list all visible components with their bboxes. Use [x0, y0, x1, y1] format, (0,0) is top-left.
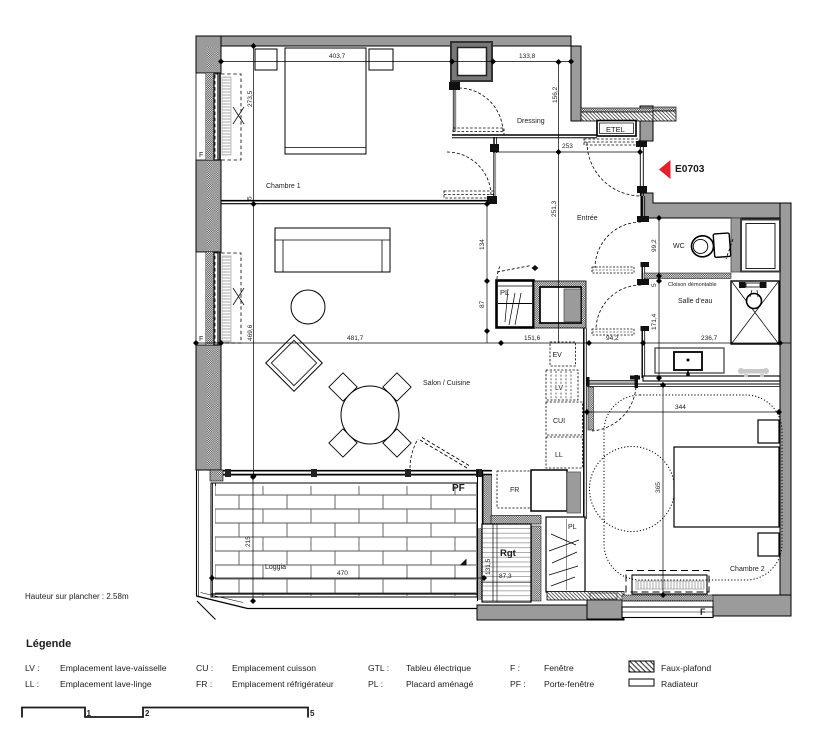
svg-text:215: 215	[245, 536, 252, 547]
svg-text:Tableu électrique: Tableu électrique	[406, 663, 471, 673]
svg-text:F :: F :	[510, 663, 520, 673]
svg-text:Radiateur: Radiateur	[661, 679, 698, 689]
svg-text:481,7: 481,7	[347, 335, 364, 342]
svg-text:Porte-fenêtre: Porte-fenêtre	[544, 679, 594, 689]
svg-text:236,7: 236,7	[701, 335, 718, 342]
svg-text:GTL :: GTL :	[368, 663, 389, 673]
svg-text:WC: WC	[673, 243, 685, 250]
svg-text:Loggia: Loggia	[265, 564, 286, 571]
svg-text:470: 470	[337, 570, 348, 577]
svg-text:Emplacement lave-vaisselle: Emplacement lave-vaisselle	[60, 663, 167, 673]
svg-text:ETEL: ETEL	[606, 125, 625, 134]
svg-text:156,2: 156,2	[552, 86, 559, 103]
svg-text:251,3: 251,3	[551, 200, 558, 217]
svg-text:Chambre 1: Chambre 1	[266, 183, 301, 190]
svg-text:CUI: CUI	[553, 418, 565, 425]
svg-text:133,8: 133,8	[519, 53, 536, 60]
svg-text:131,5: 131,5	[485, 558, 492, 575]
svg-text:134: 134	[479, 239, 486, 250]
svg-text:151,6: 151,6	[524, 335, 541, 342]
svg-text:PL :: PL :	[368, 679, 383, 689]
svg-text:94,2: 94,2	[606, 335, 619, 342]
svg-text:Dressing: Dressing	[517, 118, 545, 125]
svg-text:FR: FR	[510, 487, 519, 494]
svg-text:E0703: E0703	[675, 164, 705, 175]
svg-text:Salon / Cuisine: Salon / Cuisine	[423, 380, 470, 387]
svg-text:171,4: 171,4	[651, 313, 658, 330]
svg-text:99,2: 99,2	[651, 239, 658, 252]
svg-text:Fenêtre: Fenêtre	[544, 663, 574, 673]
svg-text:Légende: Légende	[26, 638, 71, 650]
svg-text:5: 5	[651, 283, 658, 287]
svg-text:EV: EV	[553, 352, 563, 359]
svg-text:Chambre 2: Chambre 2	[730, 566, 765, 573]
svg-text:Emplacement lave-linge: Emplacement lave-linge	[60, 679, 152, 689]
svg-text:Emplacement réfrigérateur: Emplacement réfrigérateur	[232, 679, 334, 689]
svg-text:1: 1	[87, 709, 92, 718]
svg-text:PF :: PF :	[510, 679, 526, 689]
svg-text:Hauteur sur plancher : 2.58m: Hauteur sur plancher : 2.58m	[25, 592, 129, 601]
svg-text:273,5: 273,5	[247, 90, 254, 107]
svg-text:Cloison démontable: Cloison démontable	[668, 282, 717, 288]
svg-text:Entrée: Entrée	[577, 215, 598, 222]
svg-text:CU :: CU :	[196, 663, 213, 673]
svg-text:Rgt: Rgt	[500, 548, 517, 559]
svg-text:LL :: LL :	[25, 679, 39, 689]
svg-text:Emplacement cuisson: Emplacement cuisson	[232, 663, 316, 673]
svg-text:253: 253	[562, 143, 573, 150]
svg-text:87,3: 87,3	[499, 573, 512, 580]
svg-text:PL: PL	[500, 288, 509, 297]
svg-text:FR :: FR :	[196, 679, 212, 689]
svg-text:Salle d'eau: Salle d'eau	[678, 298, 713, 305]
svg-text:F: F	[199, 152, 203, 159]
svg-text:469,6: 469,6	[247, 324, 254, 341]
svg-text:F: F	[700, 607, 706, 617]
svg-text:Placard aménagé: Placard aménagé	[406, 679, 474, 689]
svg-text:PF: PF	[452, 483, 465, 494]
svg-text:F: F	[199, 336, 203, 343]
svg-text:PL: PL	[568, 524, 577, 531]
svg-text:LV :: LV :	[25, 663, 40, 673]
svg-text:LV: LV	[555, 385, 563, 392]
svg-text:87: 87	[479, 300, 486, 308]
svg-text:403,7: 403,7	[329, 53, 346, 60]
svg-text:LL: LL	[555, 452, 563, 459]
svg-text:365: 365	[655, 482, 662, 493]
svg-text:2: 2	[145, 709, 150, 718]
svg-text:Faux-plafond: Faux-plafond	[661, 663, 711, 673]
svg-text:5: 5	[310, 709, 315, 718]
svg-text:5: 5	[247, 196, 254, 200]
svg-text:344: 344	[675, 404, 686, 411]
